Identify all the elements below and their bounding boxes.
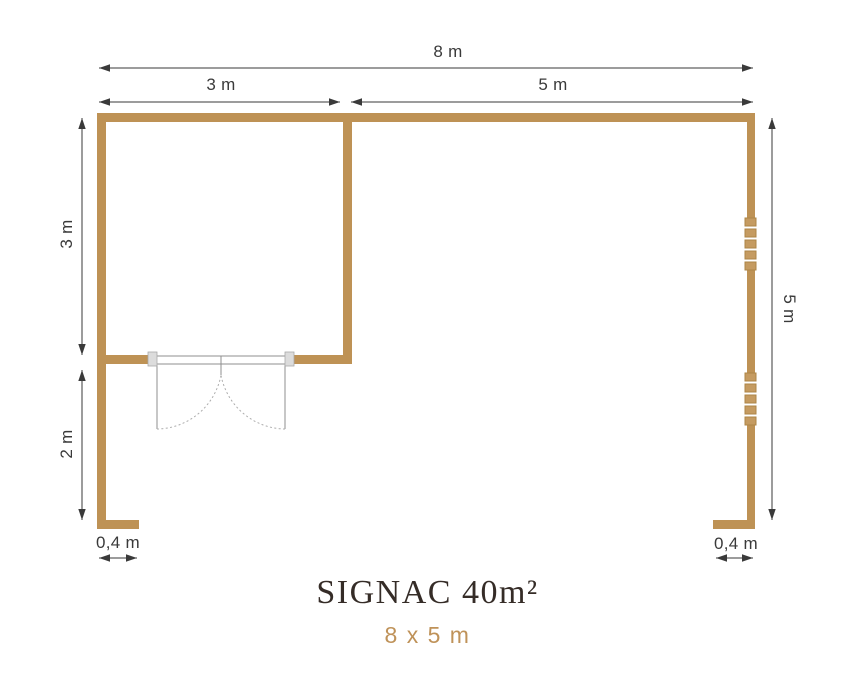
stub-wall-right <box>713 520 755 529</box>
window-dash <box>745 395 756 403</box>
dim-label-cabin-depth: 3 m <box>57 219 77 248</box>
left-wall <box>97 113 106 529</box>
front-wall-right <box>294 355 352 364</box>
window-lower <box>745 373 756 425</box>
dim-label-terrace-width: 5 m <box>538 75 567 95</box>
dim-label-stub-right: 0,4 m <box>714 534 758 554</box>
dim-label-stub-left: 0,4 m <box>96 533 140 553</box>
window-dash <box>745 406 756 414</box>
floor-plan: 8 m 3 m 5 m 3 m 2 m 5 m 0,4 m 0,4 m SIGN… <box>0 0 855 700</box>
plan-subtitle: 8 x 5 m <box>0 622 855 649</box>
dim-label-cabin-width: 3 m <box>206 75 235 95</box>
right-wall-bottom <box>747 425 755 529</box>
dim-label-terrace-depth: 2 m <box>57 429 77 458</box>
partition-wall <box>343 122 352 363</box>
front-wall-left <box>106 355 148 364</box>
door-swing-arc-right <box>221 375 285 429</box>
window-dash <box>745 262 756 270</box>
dim-label-total-width: 8 m <box>433 42 462 62</box>
door-jamb-left <box>148 352 157 366</box>
dimension-lines <box>82 68 772 558</box>
double-door <box>148 352 294 429</box>
window-dash <box>745 384 756 392</box>
right-wall-top <box>747 113 755 218</box>
stub-wall-left <box>97 520 139 529</box>
door-swing-arc-left <box>157 375 221 429</box>
top-wall <box>97 113 755 122</box>
window-upper <box>745 218 756 270</box>
window-dash <box>745 218 756 226</box>
plan-title: SIGNAC 40m² <box>0 574 855 612</box>
window-dash <box>745 240 756 248</box>
window-dash <box>745 417 756 425</box>
window-dash <box>745 229 756 237</box>
window-dash <box>745 373 756 381</box>
right-wall-middle <box>747 270 755 373</box>
walls <box>97 113 755 529</box>
door-jamb-right <box>285 352 294 366</box>
window-dash <box>745 251 756 259</box>
dim-label-total-depth: 5 m <box>779 294 799 323</box>
